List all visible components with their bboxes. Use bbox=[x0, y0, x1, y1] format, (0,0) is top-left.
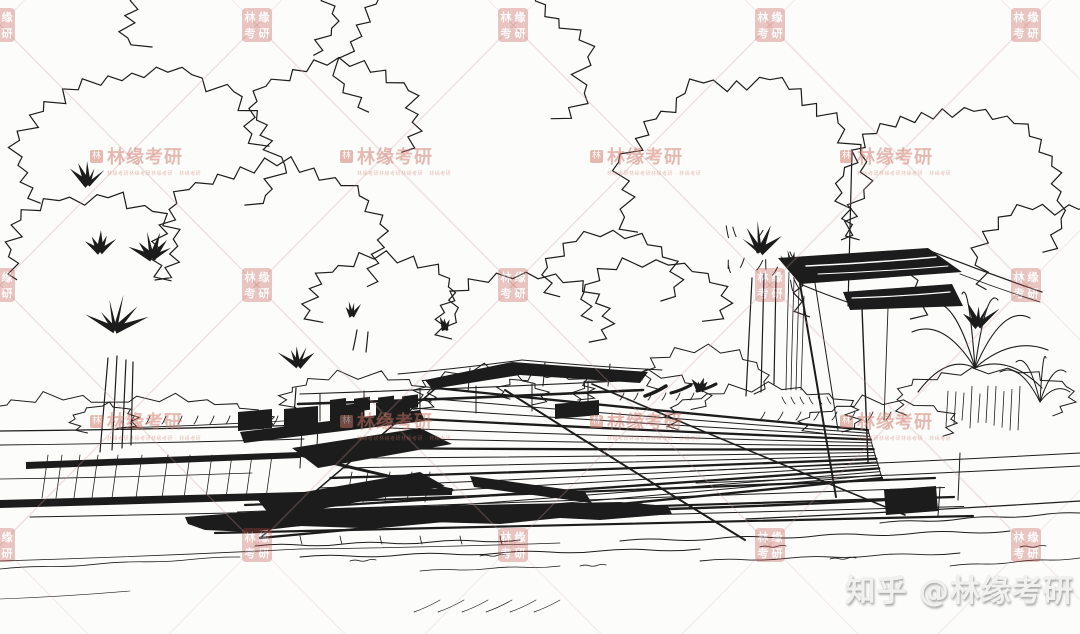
brand-microtext: 林缘考研林缘考研林缘考研 · 林缘考研 bbox=[357, 170, 451, 177]
brand-logo-watermark: 林林缘考研林缘考研林缘考研林缘考研 · 林缘考研 bbox=[840, 408, 951, 442]
seal-character: 缘 bbox=[259, 272, 270, 283]
brand-name-text: 林缘考研 bbox=[857, 408, 933, 434]
seal-character: 缘 bbox=[772, 532, 783, 543]
seal-character: 缘 bbox=[2, 272, 13, 283]
brand-seal-stamp: 林缘考研 bbox=[755, 8, 785, 42]
seal-character: 研 bbox=[259, 28, 270, 39]
brand-seal-icon: 林 bbox=[90, 415, 103, 428]
seal-character: 林 bbox=[245, 12, 256, 23]
brand-logo-watermark: 林林缘考研林缘考研林缘考研林缘考研 · 林缘考研 bbox=[840, 143, 951, 177]
brand-microtext: 林缘考研林缘考研林缘考研 · 林缘考研 bbox=[107, 435, 201, 442]
seal-character: 考 bbox=[1014, 288, 1025, 299]
brand-seal-stamp: 林缘考研 bbox=[0, 8, 15, 42]
seal-character: 研 bbox=[1028, 28, 1039, 39]
brand-seal-icon: 林 bbox=[90, 150, 103, 163]
brand-microtext: 林缘考研林缘考研林缘考研 · 林缘考研 bbox=[607, 170, 701, 177]
brand-microtext: 林缘考研林缘考研林缘考研 · 林缘考研 bbox=[607, 435, 701, 442]
seal-character: 研 bbox=[259, 548, 270, 559]
brand-name-text: 林缘考研 bbox=[607, 143, 683, 169]
brand-seal-stamp: 林缘考研 bbox=[0, 268, 15, 302]
brand-seal-icon: 林 bbox=[840, 415, 853, 428]
seal-character: 考 bbox=[758, 28, 769, 39]
brand-name-text: 林缘考研 bbox=[357, 408, 433, 434]
brand-logo-watermark: 林林缘考研林缘考研林缘考研林缘考研 · 林缘考研 bbox=[340, 143, 451, 177]
brand-seal-stamp: 林缘考研 bbox=[755, 268, 785, 302]
seal-character: 林 bbox=[758, 272, 769, 283]
seal-character: 缘 bbox=[772, 272, 783, 283]
seal-character: 缘 bbox=[515, 12, 526, 23]
watermark-lattice-line bbox=[0, 22, 260, 548]
seal-character: 缘 bbox=[2, 532, 13, 543]
seal-character: 缘 bbox=[259, 532, 270, 543]
brand-seal-stamp: 林缘考研 bbox=[242, 528, 272, 562]
seal-character: 研 bbox=[1028, 548, 1039, 559]
brand-seal-icon: 林 bbox=[590, 150, 603, 163]
brand-microtext: 林缘考研林缘考研林缘考研 · 林缘考研 bbox=[857, 170, 951, 177]
brand-name-text: 林缘考研 bbox=[107, 143, 183, 169]
brand-logo-watermark: 林林缘考研林缘考研林缘考研林缘考研 · 林缘考研 bbox=[590, 408, 701, 442]
brand-name-text: 林缘考研 bbox=[857, 143, 933, 169]
seal-character: 缘 bbox=[1028, 532, 1039, 543]
seal-character: 缘 bbox=[259, 12, 270, 23]
seal-character: 考 bbox=[758, 288, 769, 299]
seal-character: 林 bbox=[1014, 12, 1025, 23]
watermark-lattice-line bbox=[510, 0, 1030, 288]
seal-character: 林 bbox=[758, 12, 769, 23]
brand-microtext: 林缘考研林缘考研林缘考研 · 林缘考研 bbox=[357, 435, 451, 442]
brand-seal-stamp: 林缘考研 bbox=[498, 268, 528, 302]
seal-character: 研 bbox=[2, 288, 13, 299]
brand-seal-stamp: 林缘考研 bbox=[242, 8, 272, 42]
brand-seal-icon: 林 bbox=[840, 150, 853, 163]
watermark-diagonal-lattice bbox=[0, 0, 1080, 634]
seal-character: 研 bbox=[259, 288, 270, 299]
brand-name-text: 林缘考研 bbox=[107, 408, 183, 434]
seal-character: 研 bbox=[515, 288, 526, 299]
seal-character: 考 bbox=[501, 28, 512, 39]
brand-seal-stamp: 林缘考研 bbox=[755, 528, 785, 562]
seal-character: 研 bbox=[772, 28, 783, 39]
brand-seal-icon: 林 bbox=[590, 415, 603, 428]
brand-seal-stamp: 林缘考研 bbox=[0, 528, 15, 562]
seal-character: 林 bbox=[1014, 272, 1025, 283]
seal-character: 研 bbox=[2, 548, 13, 559]
seal-character: 林 bbox=[501, 12, 512, 23]
seal-character: 研 bbox=[772, 548, 783, 559]
brand-name-text: 林缘考研 bbox=[607, 408, 683, 434]
brand-seal-stamp: 林缘考研 bbox=[498, 528, 528, 562]
seal-character: 缘 bbox=[1028, 272, 1039, 283]
seal-character: 研 bbox=[2, 28, 13, 39]
brand-seal-stamp: 林缘考研 bbox=[1011, 528, 1041, 562]
seal-character: 研 bbox=[1028, 288, 1039, 299]
seal-character: 研 bbox=[772, 288, 783, 299]
brand-microtext: 林缘考研林缘考研林缘考研 · 林缘考研 bbox=[857, 435, 951, 442]
watermark-lattice-line bbox=[0, 22, 260, 548]
brand-microtext: 林缘考研林缘考研林缘考研 · 林缘考研 bbox=[107, 170, 201, 177]
seal-character: 考 bbox=[501, 548, 512, 559]
brand-seal-stamp: 林缘考研 bbox=[1011, 268, 1041, 302]
brand-name-text: 林缘考研 bbox=[357, 143, 433, 169]
brand-logo-watermark: 林林缘考研林缘考研林缘考研林缘考研 · 林缘考研 bbox=[340, 408, 451, 442]
seal-character: 考 bbox=[501, 288, 512, 299]
seal-character: 考 bbox=[245, 548, 256, 559]
seal-character: 考 bbox=[1014, 28, 1025, 39]
seal-character: 考 bbox=[245, 288, 256, 299]
watermark-lattice-line bbox=[253, 282, 773, 634]
seal-character: 缘 bbox=[515, 532, 526, 543]
seal-character: 林 bbox=[245, 272, 256, 283]
sketch-page: 林缘考研林缘考研林缘考研林缘考研林缘考研林缘考研林缘考研林缘考研林缘考研林缘考研… bbox=[0, 0, 1080, 634]
seal-character: 林 bbox=[1014, 532, 1025, 543]
brand-logo-watermark: 林林缘考研林缘考研林缘考研林缘考研 · 林缘考研 bbox=[90, 143, 201, 177]
seal-character: 研 bbox=[515, 548, 526, 559]
seal-character: 缘 bbox=[772, 12, 783, 23]
seal-character: 考 bbox=[245, 28, 256, 39]
watermark-lattice-line bbox=[0, 282, 517, 634]
zhihu-watermark: 知乎 @林缘考研 bbox=[846, 566, 1074, 610]
seal-character: 研 bbox=[515, 28, 526, 39]
brand-seal-icon: 林 bbox=[340, 150, 353, 163]
watermark-lattice-line bbox=[510, 0, 1030, 288]
seal-character: 林 bbox=[245, 532, 256, 543]
seal-character: 缘 bbox=[515, 272, 526, 283]
brand-logo-watermark: 林林缘考研林缘考研林缘考研林缘考研 · 林缘考研 bbox=[590, 143, 701, 177]
brand-seal-icon: 林 bbox=[340, 415, 353, 428]
brand-seal-stamp: 林缘考研 bbox=[498, 8, 528, 42]
watermark-lattice-line bbox=[253, 282, 773, 634]
brand-logo-watermark: 林林缘考研林缘考研林缘考研林缘考研 · 林缘考研 bbox=[90, 408, 201, 442]
seal-character: 林 bbox=[501, 272, 512, 283]
watermark-lattice-line bbox=[0, 282, 517, 634]
brand-seal-stamp: 林缘考研 bbox=[1011, 8, 1041, 42]
seal-character: 林 bbox=[758, 532, 769, 543]
seal-character: 缘 bbox=[1028, 12, 1039, 23]
seal-character: 林 bbox=[501, 532, 512, 543]
seal-character: 缘 bbox=[2, 12, 13, 23]
seal-character: 考 bbox=[758, 548, 769, 559]
seal-character: 考 bbox=[1014, 548, 1025, 559]
brand-seal-stamp: 林缘考研 bbox=[242, 268, 272, 302]
